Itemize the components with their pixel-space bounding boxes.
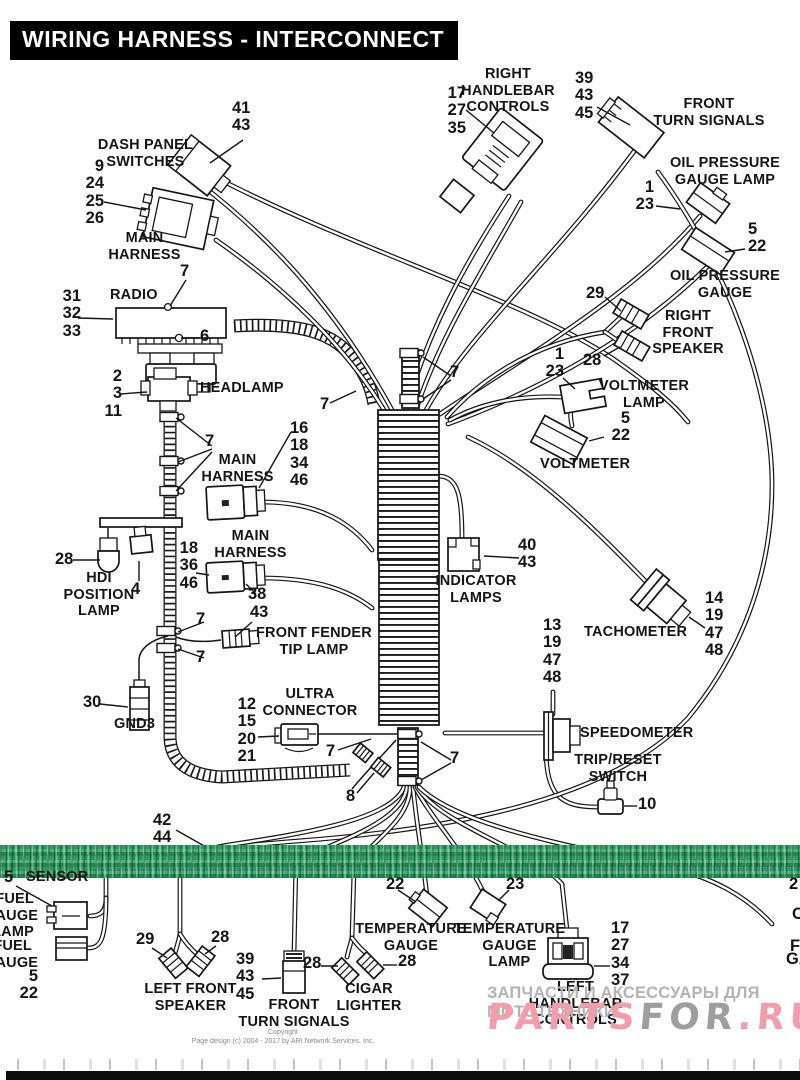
- label-temperature-gauge: TEMPERATURE GAUGE: [355, 921, 467, 954]
- watermark-logo: PARTSFOR.RU: [485, 997, 800, 1038]
- ref-22-temp: 22: [386, 876, 404, 893]
- connector-indicator-lamps: [448, 538, 480, 571]
- ref-29-lfs: 29: [136, 931, 154, 948]
- ref-10: 10: [638, 796, 656, 813]
- ref-9-24-25-26: 9 24 25 26: [80, 158, 104, 228]
- connector-right-front-speaker-2: [614, 331, 650, 361]
- label-right-handlebar-controls: RIGHT HANDLEBAR CONTROLS: [452, 66, 564, 116]
- hdi-position-lamp-bulb: [98, 538, 119, 572]
- label-main-harness-c: MAIN HARNESS: [198, 528, 303, 561]
- ref-6: 6: [200, 328, 209, 345]
- watermark-logo-right: .RU: [736, 997, 800, 1038]
- frag-right-2: C: [792, 906, 800, 923]
- label-right-front-speaker: RIGHT FRONT SPEAKER: [648, 308, 728, 358]
- connector-fuel-gauge-lamp: [47, 902, 87, 929]
- ref-16-18-34-46: 16 18 34 46: [290, 420, 318, 490]
- ref-28-hdi: 28: [55, 551, 73, 568]
- bottom-black-bar: [6, 1071, 800, 1080]
- connector-8-pair: [353, 743, 391, 777]
- ref-5-22-fuel: 5 22: [12, 968, 38, 1003]
- ref-31-32-33: 31 32 33: [55, 288, 81, 340]
- label-indicator-lamps: INDICATOR LAMPS: [432, 573, 520, 606]
- fork-bracket: [100, 518, 182, 527]
- label-headlamp: HEADLAMP: [200, 380, 284, 397]
- ref-1-23-vl: 1 23: [540, 346, 564, 381]
- ref-7-stub: 7: [450, 750, 459, 767]
- copyright-line1: Copyright: [268, 1029, 298, 1036]
- label-ultra-connector: ULTRA CONNECTOR: [260, 686, 360, 719]
- ref-40-43: 40 43: [518, 537, 546, 572]
- connector-left-front-speaker-1: [159, 948, 188, 978]
- connector-trip-reset-switch: [598, 781, 623, 814]
- connector-ultra: [275, 724, 318, 752]
- ref-17-27-35: 17 27 35: [440, 85, 466, 137]
- copyright-line2: Page design (c) 2004 - 2017 by ARI Netwo…: [192, 1038, 374, 1045]
- ref-43-fender: 43: [250, 604, 268, 621]
- ref-14-19-47-48: 14 19 47 48: [705, 590, 733, 660]
- ref-39-43-45-t: 39 43 45: [575, 70, 603, 122]
- ref-41-43: 41 43: [232, 100, 250, 135]
- wiring-diagram-page: { "title": "WIRING HARNESS - INTERCONNEC…: [0, 0, 800, 1080]
- connector-main-harness-b: [206, 484, 266, 520]
- ref-12-15-20-21: 12 15 20 21: [230, 696, 256, 766]
- ref-5-22-opg: 5 22: [748, 221, 774, 256]
- label-tachometer: TACHOMETER: [584, 624, 687, 641]
- frag-right-4: GA: [786, 951, 800, 968]
- label-front-turn-signals-t: FRONT TURN SIGNALS: [650, 96, 768, 129]
- label-trip-reset-switch: TRIP/RESET SWITCH: [568, 752, 668, 785]
- ref-7-clamp-b: 7: [196, 649, 205, 666]
- ref-7-headlamp: 7: [205, 433, 214, 450]
- ref-28-rfs: 28: [583, 352, 601, 369]
- ref-2-3-11: 2 3 11: [98, 368, 122, 420]
- ref-18-36-46: 18 36 46: [172, 540, 198, 592]
- label-voltmeter-lamp: VOLTMETER LAMP: [598, 378, 690, 411]
- label-front-fender-tip-lamp: FRONT FENDER TIP LAMP: [255, 625, 373, 658]
- label-hdi-position-lamp: HDI POSITION LAMP: [58, 570, 140, 620]
- label-main-harness-a: MAIN HARNESS: [92, 230, 197, 263]
- scanline-noise: [0, 1059, 800, 1070]
- ref-38: 38: [248, 586, 266, 603]
- connector-4: [129, 526, 153, 554]
- label-temperature-gauge-lamp: TEMPERATURE GAUGE LAMP: [452, 921, 567, 971]
- ref-28-cigar: 28: [303, 955, 321, 972]
- copyright-text: Copyright Page design (c) 2004 - 2017 by…: [133, 1028, 433, 1047]
- ref-28-temp: 28: [398, 953, 416, 970]
- connector-right-front-speaker-1: [613, 299, 649, 329]
- connector-front-turn-signals-bottom: [283, 951, 305, 993]
- ref-39-43-45-b: 39 43 45: [236, 951, 262, 1003]
- label-fuel-gauge: FUEL GAUGE: [0, 938, 32, 971]
- ref-30: 30: [83, 694, 101, 711]
- ref-42-44: 42 44: [153, 812, 171, 847]
- label-gnd3: GND3: [114, 716, 155, 733]
- connector-fuel-gauge: [56, 937, 87, 960]
- label-sensor: SENSOR: [26, 869, 88, 886]
- ref-sensor: 5: [4, 869, 13, 886]
- label-oil-pressure-gauge: OIL PRESSURE GAUGE: [660, 268, 790, 301]
- ref-1-23-opl: 1 23: [630, 179, 654, 214]
- ref-29-rfs: 29: [586, 285, 604, 302]
- label-voltmeter: VOLTMETER: [540, 456, 630, 473]
- ref-7-clamp-a: 7: [196, 611, 205, 628]
- ref-7-mid-right: 7: [450, 364, 459, 381]
- main-harness-conduit: [378, 350, 439, 785]
- connector-cigar-lighter-2: [357, 952, 384, 979]
- frag-right-1: 2: [789, 876, 798, 893]
- green-watermark-band: [0, 845, 800, 878]
- ref-28-lfs: 28: [211, 929, 229, 946]
- ref-7-mid-left: 7: [320, 396, 329, 413]
- label-speedometer: SPEEDOMETER: [580, 725, 693, 742]
- connector-small-square: [440, 179, 474, 212]
- ref-7-radio: 7: [180, 263, 189, 280]
- ref-5-22-vm: 5 22: [604, 410, 630, 445]
- watermark-logo-mid: FOR: [638, 997, 740, 1038]
- label-radio: RADIO: [110, 287, 158, 304]
- ref-4: 4: [131, 581, 140, 598]
- label-left-front-speaker: LEFT FRONT SPEAKER: [138, 981, 243, 1014]
- connector-temperature-gauge-lamp: [469, 889, 506, 925]
- label-cigar-lighter: CIGAR LIGHTER: [330, 981, 408, 1014]
- label-fuel-gauge-lamp: FUEL GAUGE LAMP: [0, 891, 34, 941]
- ref-23-temp: 23: [506, 876, 524, 893]
- label-main-harness-b: MAIN HARNESS: [185, 452, 290, 485]
- ref-8: 8: [346, 788, 355, 805]
- watermark-logo-left: PARTS: [485, 997, 641, 1038]
- label-oil-pressure-gauge-lamp: OIL PRESSURE GAUGE LAMP: [660, 155, 790, 188]
- connector-right-handlebar-controls: [460, 107, 543, 192]
- ref-7-ultra: 7: [326, 743, 335, 760]
- page-title: WIRING HARNESS - INTERCONNECT: [10, 21, 458, 60]
- ref-13-19-47-48: 13 19 47 48: [543, 617, 569, 687]
